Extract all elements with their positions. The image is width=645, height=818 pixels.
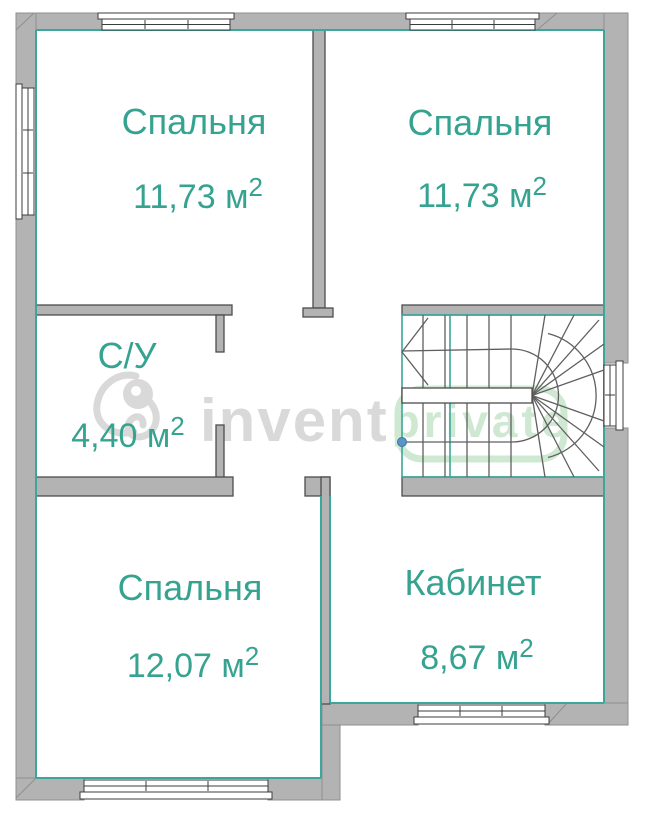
wall-east-of-bottom-bedroom <box>322 725 340 800</box>
watermark-brand-text: invent <box>200 387 389 454</box>
wall-right-lower <box>604 428 628 725</box>
bathroom-door-jamb-lower <box>216 425 224 478</box>
bathroom-bottom-wall <box>36 477 233 496</box>
stair-top-wall <box>402 305 604 315</box>
bathroom-door-jamb-upper <box>216 315 224 352</box>
wall-bottom-left-corner <box>16 778 84 800</box>
wall-right-upper <box>604 13 628 363</box>
wall-between-bedroom-and-office <box>321 477 330 704</box>
wall-top-center <box>230 13 410 30</box>
room-name-bathroom: С/У <box>98 335 158 376</box>
room-area-bedroom-top-right: 11,73 м2 <box>417 171 547 215</box>
window-left <box>16 84 34 219</box>
window-top-left <box>98 13 234 30</box>
room-area-bedroom-top-left: 11,73 м2 <box>133 172 263 216</box>
room-name-bedroom-top-right: Спальня <box>408 102 553 143</box>
floor-plan-drawing: invent private <box>0 0 645 813</box>
window-top-right <box>406 13 539 30</box>
floor-plan-page: invent private <box>0 0 645 813</box>
room-area-bedroom-bottom: 12,07 м2 <box>127 641 259 685</box>
window-bottom-left <box>80 780 272 799</box>
window-office-bottom <box>414 705 549 724</box>
wall-end-cap <box>303 308 333 317</box>
wall-left-lower <box>16 215 36 778</box>
wall-bottom-right-segment <box>322 703 418 725</box>
room-area-office: 8,67 м2 <box>420 633 533 677</box>
room-area-bathroom: 4,40 м2 <box>71 411 184 455</box>
room-name-bedroom-top-left: Спальня <box>122 101 267 142</box>
wall-between-top-bedrooms <box>313 30 325 308</box>
room-name-bedroom-bottom: Спальня <box>118 567 263 608</box>
bathroom-top-wall <box>36 305 232 315</box>
wall-left-upper <box>16 13 36 88</box>
stair-bottom-wall <box>402 477 604 496</box>
stair-flight-divider <box>402 388 532 403</box>
stair-walk-start-dot <box>398 438 407 447</box>
window-stair-right <box>604 361 623 430</box>
room-name-office: Кабинет <box>405 562 542 603</box>
